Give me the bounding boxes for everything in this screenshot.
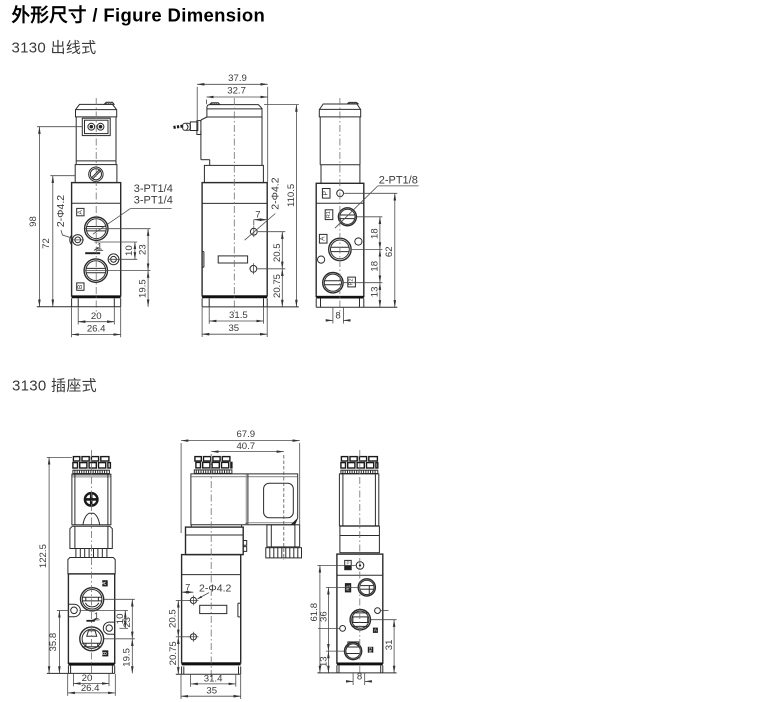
svg-text:62: 62 bbox=[384, 246, 395, 257]
svg-text:13: 13 bbox=[319, 656, 330, 667]
svg-text:8: 8 bbox=[357, 672, 362, 683]
svg-text:7: 7 bbox=[185, 582, 190, 592]
svg-text:18: 18 bbox=[369, 261, 380, 272]
svg-text:23: 23 bbox=[138, 244, 149, 255]
svg-text:98: 98 bbox=[28, 216, 39, 227]
svg-text:R2: R2 bbox=[349, 278, 355, 285]
svg-text:P: P bbox=[323, 191, 330, 196]
svg-text:36: 36 bbox=[318, 611, 329, 622]
svg-text:32.7: 32.7 bbox=[227, 85, 246, 96]
svg-text:7: 7 bbox=[255, 209, 260, 220]
svg-text:19.5: 19.5 bbox=[137, 279, 148, 298]
svg-text:23: 23 bbox=[122, 617, 133, 628]
svg-text:26.4: 26.4 bbox=[81, 683, 100, 694]
svg-text:3-PT1/4: 3-PT1/4 bbox=[134, 195, 173, 207]
svg-text:20.5: 20.5 bbox=[272, 243, 283, 262]
svg-text:R2: R2 bbox=[368, 646, 373, 652]
svg-text:20.75: 20.75 bbox=[168, 641, 179, 665]
svg-text:A: A bbox=[320, 236, 327, 241]
svg-text:R1: R1 bbox=[326, 211, 332, 218]
svg-text:P: P bbox=[346, 561, 349, 566]
svg-text:3-PT1/4: 3-PT1/4 bbox=[134, 183, 173, 195]
svg-text:B: B bbox=[77, 285, 84, 289]
svg-text:19.5: 19.5 bbox=[122, 648, 133, 667]
svg-text:2-PT1/8: 2-PT1/8 bbox=[379, 175, 418, 187]
svg-text:3130 出线式: 3130 出线式 bbox=[12, 39, 97, 56]
svg-text:2-Φ4.2: 2-Φ4.2 bbox=[55, 195, 67, 227]
svg-text:13: 13 bbox=[369, 287, 380, 298]
svg-text:外形尺寸 / Figure Dimension: 外形尺寸 / Figure Dimension bbox=[12, 4, 266, 25]
svg-text:8: 8 bbox=[335, 310, 340, 321]
svg-text:18: 18 bbox=[369, 228, 380, 239]
svg-text:110.5: 110.5 bbox=[286, 184, 297, 207]
svg-text:3130 插座式: 3130 插座式 bbox=[12, 377, 97, 394]
svg-text:20: 20 bbox=[91, 311, 102, 322]
svg-text:26.4: 26.4 bbox=[87, 324, 106, 335]
svg-text:A: A bbox=[374, 628, 377, 633]
svg-text:20.5: 20.5 bbox=[168, 609, 179, 628]
svg-text:37.9: 37.9 bbox=[228, 73, 247, 84]
svg-text:35: 35 bbox=[206, 685, 217, 696]
svg-text:31.4: 31.4 bbox=[204, 673, 223, 684]
svg-text:72: 72 bbox=[41, 238, 52, 249]
svg-text:10: 10 bbox=[124, 245, 135, 256]
svg-text:40.7: 40.7 bbox=[236, 441, 255, 452]
svg-text:A: A bbox=[77, 209, 84, 214]
svg-text:2-Φ4.2: 2-Φ4.2 bbox=[269, 177, 281, 209]
svg-text:20.75: 20.75 bbox=[272, 274, 283, 298]
svg-text:31: 31 bbox=[384, 640, 395, 651]
svg-text:35: 35 bbox=[228, 323, 239, 334]
svg-text:35.8: 35.8 bbox=[48, 633, 59, 652]
svg-text:2-Φ4.2: 2-Φ4.2 bbox=[199, 582, 231, 594]
svg-text:31.5: 31.5 bbox=[229, 310, 248, 321]
svg-text:122.5: 122.5 bbox=[38, 544, 49, 568]
svg-text:67.9: 67.9 bbox=[236, 429, 255, 440]
